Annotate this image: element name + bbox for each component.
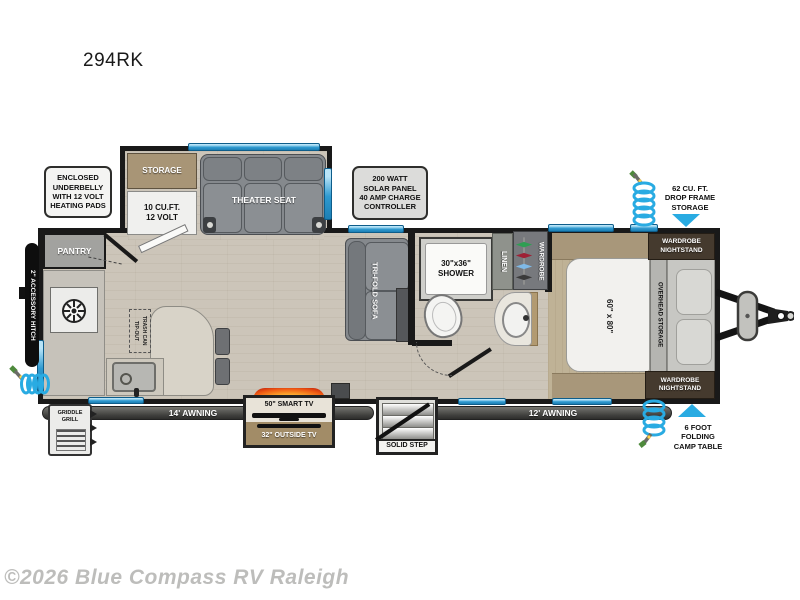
window-icon bbox=[552, 398, 612, 405]
theater-seat: THEATER SEAT bbox=[200, 154, 326, 235]
trash-can-label: TIP-OUT TRASH CAN bbox=[129, 309, 151, 353]
linen-label: LINEN bbox=[498, 251, 507, 272]
awning-14-label: 14' AWNING bbox=[123, 407, 263, 419]
kitchen-sink bbox=[112, 362, 156, 392]
awning-12-bar: 12' AWNING bbox=[432, 406, 672, 420]
theater-armrest bbox=[312, 217, 325, 233]
tv-entertainment-unit: 50" SMART TV 32" OUTSIDE TV bbox=[243, 395, 335, 448]
pillow bbox=[676, 269, 712, 315]
refrigerator-label: 10 CU.FT. 12 VOLT bbox=[144, 203, 180, 223]
water-hose-coil-icon bbox=[8, 358, 50, 396]
window-icon bbox=[188, 143, 320, 151]
drop-frame-storage-label: 62 CU. FT. DROP FRAME STORAGE bbox=[656, 182, 724, 214]
shower-label: 30"x36" SHOWER bbox=[421, 239, 491, 299]
bathroom-vanity bbox=[494, 292, 538, 344]
bed: 60" x 80" bbox=[566, 258, 650, 372]
window-icon bbox=[458, 398, 506, 405]
pantry-label: PANTRY bbox=[58, 246, 92, 257]
copyright-text: ©2026 Blue Compass RV Raleigh bbox=[4, 566, 349, 590]
burner-icon bbox=[59, 296, 89, 326]
sofa-label: TRI-FOLD SOFA bbox=[360, 239, 390, 342]
awning-12-label: 12' AWNING bbox=[433, 407, 673, 419]
window-icon bbox=[548, 224, 614, 232]
arrow-up-icon bbox=[678, 404, 706, 417]
pantry: PANTRY bbox=[43, 233, 106, 269]
bedroom-bottom-band bbox=[552, 373, 645, 399]
storage-cabinet: STORAGE bbox=[127, 153, 197, 189]
nightstand-rear: WARDROBE NIGHTSTAND bbox=[645, 371, 715, 399]
wardrobe-cabinet: WARDROBE bbox=[513, 231, 548, 290]
entry-step: SOLID STEP bbox=[376, 397, 438, 455]
solid-step-label: SOLID STEP bbox=[379, 439, 435, 452]
solar-callout: 200 WATT SOLAR PANEL 40 AMP CHARGE CONTR… bbox=[352, 166, 428, 220]
faucet-icon bbox=[523, 315, 529, 321]
grill-knob bbox=[90, 424, 97, 432]
window-icon bbox=[324, 168, 332, 220]
wardrobe-label: WARDROBE bbox=[533, 232, 548, 291]
shower: 30"x36" SHOWER bbox=[419, 237, 493, 301]
grill-knob bbox=[90, 410, 97, 418]
griddle-grill-label: GRIDDLE GRILL bbox=[50, 408, 90, 426]
pillow bbox=[676, 319, 712, 365]
bathroom-wall bbox=[408, 233, 415, 345]
nightstand-front: WARDROBE NIGHTSTAND bbox=[648, 233, 715, 260]
sink-drain bbox=[120, 373, 132, 385]
stove bbox=[50, 287, 98, 333]
grill-knob bbox=[90, 438, 97, 446]
tv-stand bbox=[279, 418, 299, 421]
linen-cabinet: LINEN bbox=[492, 233, 513, 290]
accessory-hitch-label: 2" ACCESSORY HITCH bbox=[25, 243, 39, 367]
storage-label: STORAGE bbox=[142, 166, 181, 176]
underbelly-callout: ENCLOSED UNDERBELLY WITH 12 VOLT HEATING… bbox=[44, 166, 112, 218]
theater-armrest bbox=[203, 217, 216, 233]
bar-stool bbox=[215, 328, 230, 355]
outside-tv-label: 32" OUTSIDE TV bbox=[246, 429, 332, 443]
hitch-assembly-icon bbox=[716, 282, 794, 348]
window-icon bbox=[348, 225, 404, 233]
faucet-icon bbox=[134, 388, 139, 397]
hangers-icon bbox=[514, 235, 534, 287]
accessory-hitch-bar: 2" ACCESSORY HITCH bbox=[25, 243, 39, 367]
bar-stool bbox=[215, 358, 230, 385]
camp-table-label: 6 FOOT FOLDING CAMP TABLE bbox=[658, 419, 738, 455]
smart-tv-label: 50" SMART TV bbox=[246, 399, 332, 411]
theater-backrest bbox=[203, 157, 323, 181]
arrow-down-icon bbox=[672, 214, 700, 227]
theater-seat-label: THEATER SEAT bbox=[201, 185, 327, 215]
griddle-grill: GRIDDLE GRILL bbox=[48, 404, 92, 456]
bed-headboard bbox=[667, 258, 715, 372]
bed-size-label: 60" x 80" bbox=[567, 259, 651, 373]
window-icon bbox=[88, 397, 144, 404]
floorplan: STORAGE 10 CU.FT. 12 VOLT THEATER SEAT 2… bbox=[0, 0, 800, 600]
bedroom-top-band bbox=[552, 233, 648, 260]
overhead-storage: OVERHEAD STORAGE bbox=[650, 258, 667, 372]
tv-screen-bar bbox=[257, 424, 321, 428]
grill-grate bbox=[56, 429, 86, 451]
